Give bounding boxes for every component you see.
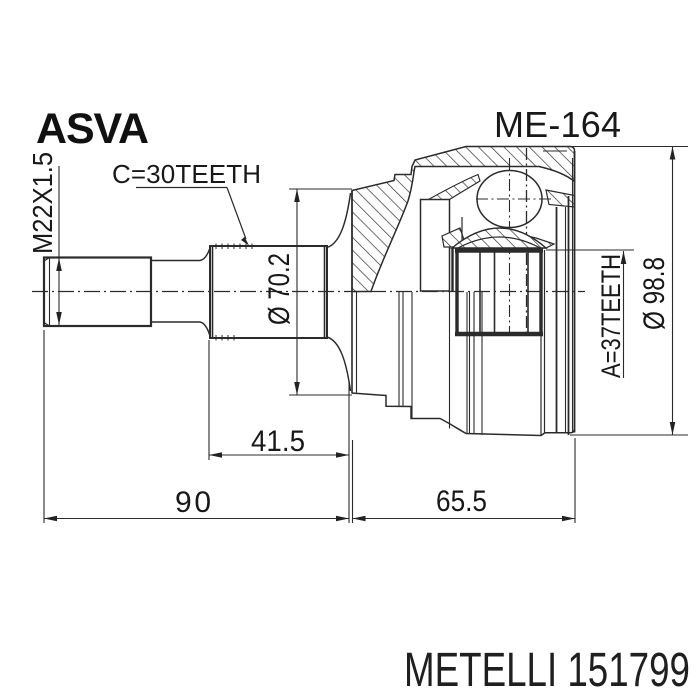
svg-text:ME-164: ME-164 bbox=[494, 104, 621, 145]
svg-text:C=30TEETH: C=30TEETH bbox=[112, 159, 261, 189]
svg-text:Ø 70.2: Ø 70.2 bbox=[263, 253, 296, 325]
svg-text:Ø 98.8: Ø 98.8 bbox=[638, 257, 671, 330]
svg-text:41.5: 41.5 bbox=[251, 425, 305, 458]
svg-text:90: 90 bbox=[175, 486, 211, 519]
svg-text:M22X1.5: M22X1.5 bbox=[27, 152, 58, 254]
svg-text:65.5: 65.5 bbox=[436, 485, 487, 518]
svg-text:ASVA: ASVA bbox=[36, 105, 149, 153]
svg-text:METELLI 151799: METELLI 151799 bbox=[404, 644, 690, 697]
svg-text:A=37TEETH: A=37TEETH bbox=[596, 254, 626, 378]
